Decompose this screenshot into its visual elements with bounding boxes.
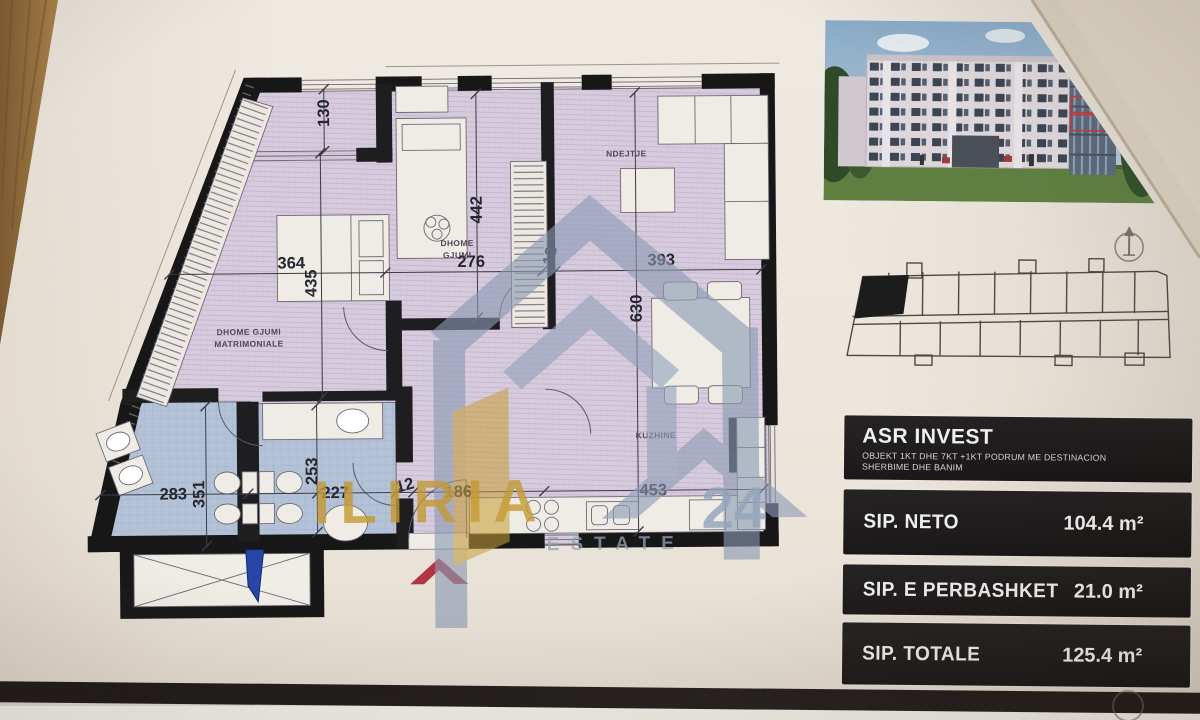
area-label: SIP. E PERBASHKET	[863, 578, 1059, 603]
developer-panel: ASR INVEST OBJEKT 1KT DHE 7KT +1KT PODRU…	[844, 415, 1193, 482]
project-description-2: SHERBIME DHE BANIM	[862, 461, 1192, 475]
area-label: SIP. TOTALE	[862, 642, 980, 666]
area-panel-perbashket: SIP. E PERBASHKET 21.0 m²	[843, 564, 1191, 617]
area-panel-neto: SIP. NETO 104.4 m²	[843, 489, 1192, 557]
area-panel-totale: SIP. TOTALE 125.4 m²	[842, 622, 1191, 687]
footer-emblem-icon	[1112, 690, 1144, 720]
area-value: 21.0 m²	[1074, 580, 1143, 604]
developer-name: ASR INVEST	[862, 425, 1192, 452]
brochure-photo: 130 364 435 276 442 12 393 630 283 351 2…	[0, 0, 1200, 720]
background-wedge	[0, 0, 1200, 300]
area-value: 104.4 m²	[1063, 512, 1143, 536]
table-surface	[0, 0, 80, 400]
area-label: SIP. NETO	[863, 511, 959, 535]
area-value: 125.4 m²	[1062, 644, 1142, 668]
